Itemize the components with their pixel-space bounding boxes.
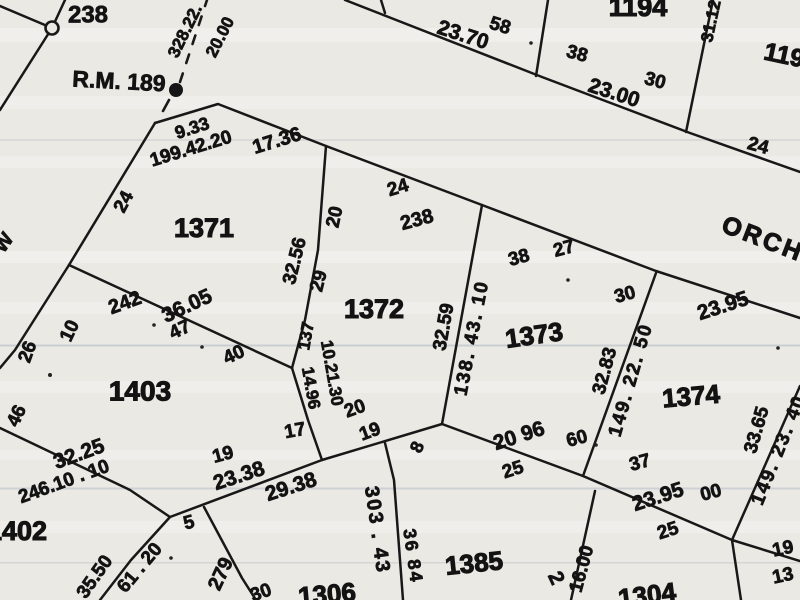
- svg-text:1374: 1374: [661, 378, 722, 413]
- svg-text:R.M. 189: R.M. 189: [72, 66, 167, 97]
- svg-text:17: 17: [283, 419, 307, 443]
- svg-text:20: 20: [323, 204, 348, 229]
- svg-text:238: 238: [68, 2, 108, 29]
- svg-text:1194: 1194: [609, 0, 668, 22]
- svg-text:1403: 1403: [109, 376, 171, 407]
- svg-text:1385: 1385: [444, 545, 505, 581]
- svg-text:19: 19: [770, 537, 795, 562]
- svg-text:1371: 1371: [174, 213, 234, 243]
- svg-text:1372: 1372: [344, 294, 404, 324]
- svg-text:1306: 1306: [297, 577, 357, 600]
- svg-text:1402: 1402: [0, 516, 47, 546]
- svg-text:13: 13: [770, 564, 795, 589]
